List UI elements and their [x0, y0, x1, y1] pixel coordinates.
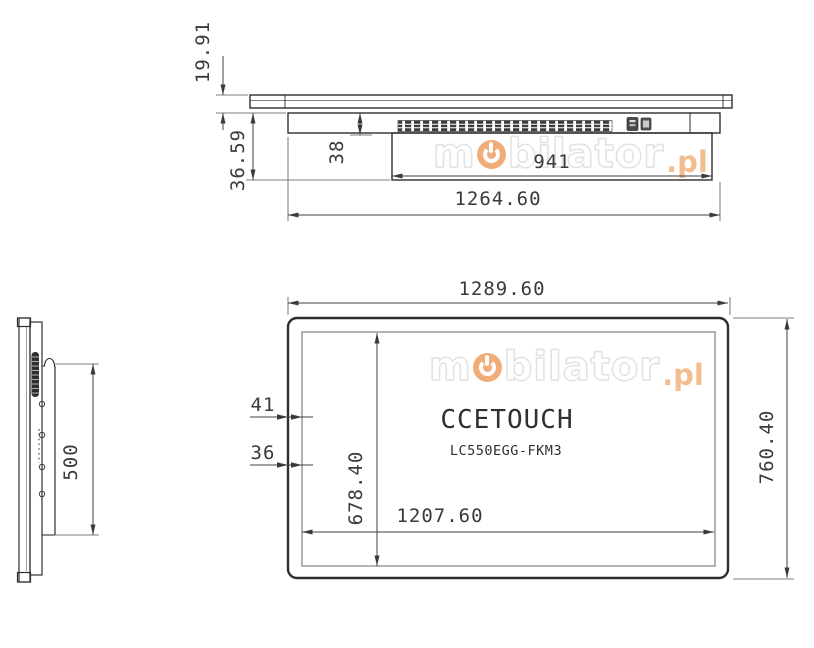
- dim-label-overall-height: 760.40: [756, 410, 778, 485]
- vent-grille: [398, 121, 612, 132]
- bracket-hook: [42, 359, 55, 366]
- dim-label-body-depth: 38: [326, 140, 348, 165]
- model-text: LC550EGG-FKM3: [450, 443, 562, 459]
- dim-label-overall-width: 1289.60: [458, 278, 545, 300]
- dim-label-bezel-a: 41: [251, 394, 276, 416]
- dim-label-screen-width: 1207.60: [396, 505, 483, 527]
- drawing-linework: 19.91 36.59 38 941 1264.60: [0, 0, 814, 648]
- dim-label-bezel-b: 36: [251, 442, 276, 464]
- dim-label-mount-height: 500: [60, 443, 82, 480]
- port-icons: [627, 118, 651, 131]
- top-view: 19.91 36.59 38 941 1264.60: [192, 21, 732, 221]
- dim-label-screen-height: 678.40: [345, 451, 367, 526]
- dim-label-top-overall-width: 1264.60: [454, 188, 541, 210]
- side-view-glass: [19, 318, 30, 582]
- dim-label-rear-width: 941: [533, 151, 570, 173]
- dim-label-glass-height: 19.91: [192, 21, 214, 83]
- technical-drawing: mbilator.pl mbilator.pl: [0, 0, 814, 648]
- side-view: 500: [18, 318, 100, 582]
- dim-label-total-depth: 36.59: [227, 129, 249, 191]
- top-view-glass-panel: [250, 95, 732, 108]
- side-connector-block: [32, 352, 40, 397]
- front-view: CCETOUCH LC550EGG-FKM3 1289.60 760.40 67…: [250, 278, 794, 579]
- brand-text: CCETOUCH: [440, 405, 573, 435]
